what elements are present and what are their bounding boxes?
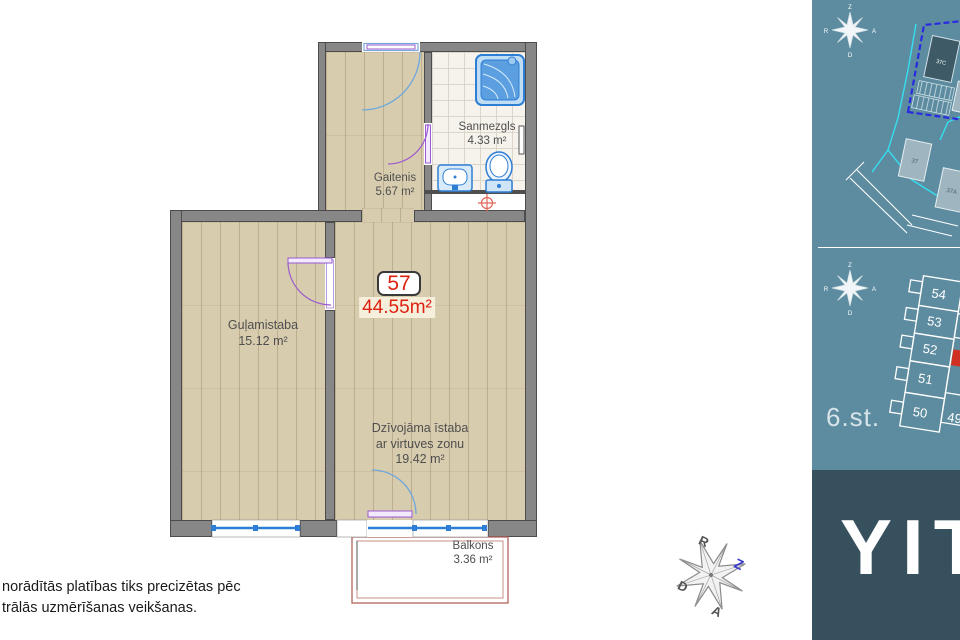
- bedroom-name: Guļamistaba: [228, 318, 298, 334]
- compass-west-label: R: [696, 533, 711, 551]
- livingroom-window: [412, 520, 488, 537]
- livingroom-name-line2: ar virtuves zonu: [372, 437, 469, 453]
- compass-south-label: D: [675, 578, 690, 596]
- unit-partial: 49: [946, 409, 960, 426]
- bedroom-area: 15.12 m²: [228, 334, 298, 350]
- plan-symbol-overlay: Z D A R: [0, 0, 812, 640]
- apartment-number-badge: 57: [377, 271, 421, 296]
- floor-compass-w: R: [824, 287, 829, 293]
- unit-51: 51: [917, 370, 934, 387]
- hallway-name: Gaitenis: [374, 171, 416, 185]
- sidebar-divider: [818, 247, 960, 248]
- floor-compass-s: D: [848, 311, 853, 317]
- shower-icon: [476, 55, 524, 105]
- unit-54: 54: [931, 285, 948, 302]
- livingroom-label: Dzīvojāma īstaba ar virtuves zonu 19.42 …: [372, 421, 469, 468]
- bedroom-label: Guļamistaba 15.12 m²: [228, 318, 298, 349]
- site-parking: [912, 80, 955, 115]
- balcony-label: Balkons 3.36 m²: [453, 539, 494, 567]
- apartment-total-area: 44.55m²: [359, 297, 435, 318]
- sink-icon: [438, 165, 472, 191]
- site-current-building: 37C: [924, 36, 960, 83]
- hallway-label: Gaitenis 5.67 m²: [374, 171, 416, 199]
- balcony-door-arc: [372, 470, 416, 514]
- site-compass-icon: Z D A R: [824, 5, 876, 59]
- unit-50: 50: [912, 404, 929, 421]
- disclaimer-line2: trālās uzmērīšanas veikšanas.: [2, 598, 241, 619]
- livingroom-area: 19.42 m²: [372, 452, 469, 468]
- floor-stack: 54 53 52 51 50 49 Z D A R: [812, 250, 960, 470]
- bathroom-door: [388, 123, 432, 165]
- brand-panel: YIT: [812, 470, 960, 640]
- brand-logo: YIT: [840, 508, 960, 586]
- compass-east-label: A: [709, 603, 724, 621]
- disclaimer-line1: norādītās platības tiks precizētas pēc: [2, 577, 241, 598]
- site-building-b: 37A: [935, 168, 960, 213]
- livingroom-name-line1: Dzīvojāma īstaba: [372, 421, 469, 437]
- bathroom-name: Sanmezgls: [459, 120, 516, 134]
- unit-53: 53: [926, 313, 943, 330]
- floor-compass-icon: Z D A R: [824, 263, 876, 317]
- site-compass-e: A: [872, 29, 876, 35]
- floorplan-page: Z D A R Sanmezgls 4.33 m² Gaitenis 5.67 …: [0, 0, 960, 640]
- toilet-icon: [486, 152, 512, 192]
- site-building-a: 37: [898, 139, 931, 182]
- sidebar: 37C 37 37A Z D A R: [812, 0, 960, 640]
- bedroom-window: [211, 520, 300, 537]
- bathroom-door-arc: [388, 124, 428, 164]
- entrance-door-arc: [362, 52, 420, 110]
- unit-52: 52: [922, 341, 939, 358]
- balcony-area: 3.36 m²: [453, 553, 494, 567]
- site-compass-w: R: [824, 29, 829, 35]
- shaft-crosshair-icon: [478, 194, 496, 212]
- floor-compass-e: A: [872, 287, 876, 293]
- bottom-opening: [337, 520, 367, 537]
- bath-wall-niche: [519, 126, 524, 154]
- entrance-door: [362, 42, 420, 110]
- bedroom-door-arc: [288, 262, 331, 305]
- site-plan: 37C 37 37A Z D A R: [812, 0, 960, 248]
- hallway-area: 5.67 m²: [374, 185, 416, 199]
- site-building-partial: [952, 81, 960, 115]
- balcony-door: [367, 470, 416, 537]
- compass-rose: Z D A R: [666, 530, 757, 621]
- bedroom-door: [288, 258, 335, 310]
- bathroom-label: Sanmezgls 4.33 m²: [459, 120, 516, 148]
- site-compass-s: D: [848, 53, 853, 59]
- disclaimer-text: norādītās platības tiks precizētas pēc t…: [2, 577, 241, 619]
- bathroom-area: 4.33 m²: [459, 134, 516, 148]
- balcony-name: Balkons: [453, 539, 494, 553]
- floor-number-label: 6.st.: [826, 402, 880, 433]
- floor-stack-plan: 54 53 52 51 50 49: [888, 274, 960, 438]
- site-compass-n: Z: [848, 5, 852, 11]
- floor-compass-n: Z: [848, 263, 852, 269]
